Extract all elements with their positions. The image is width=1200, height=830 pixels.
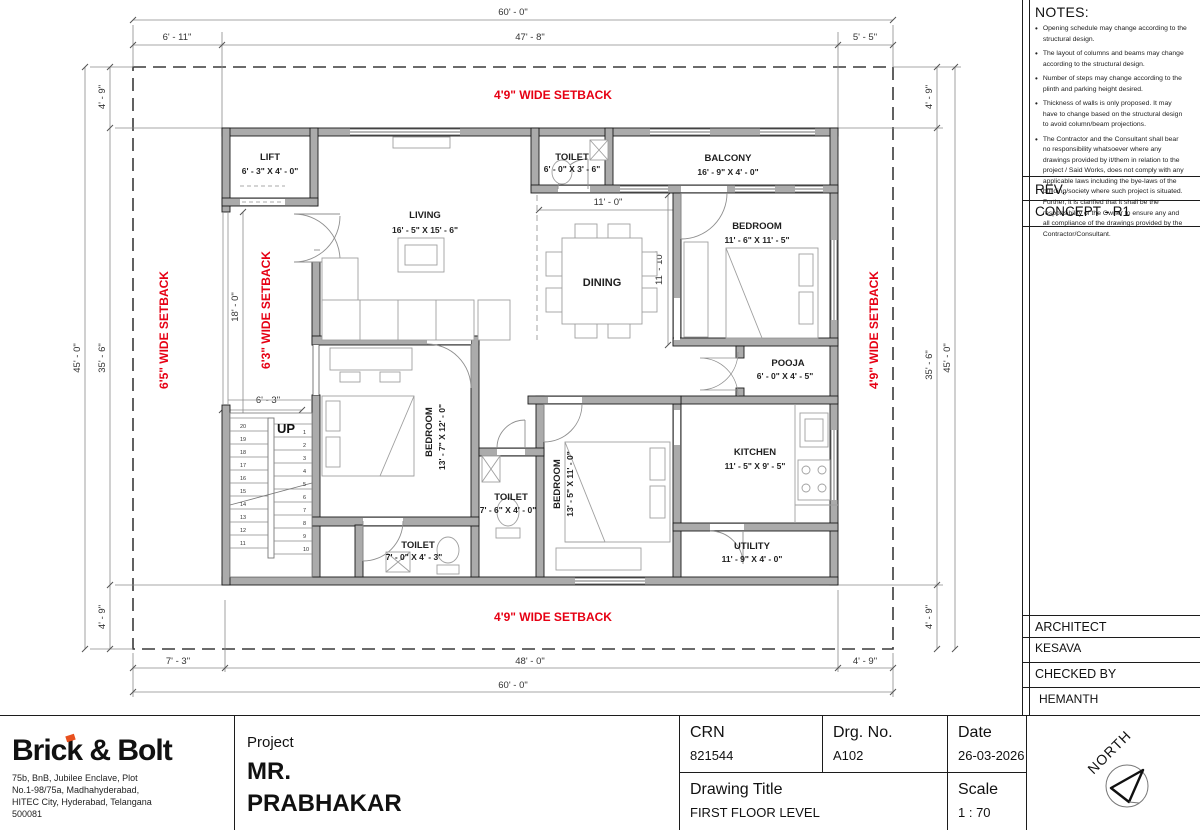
divider: [1023, 200, 1200, 201]
crn-label: CRN: [690, 724, 725, 742]
date-value: 26-03-2026: [958, 748, 1025, 763]
project-name-line2: PRABHAKAR: [247, 790, 402, 818]
stair-number: 11: [240, 541, 246, 547]
dim-bottom-total: 60' - 0": [498, 680, 527, 691]
divider: [1023, 687, 1200, 688]
crn-value: 821544: [690, 748, 733, 763]
drawing-title-cell: Drawing Title FIRST FLOOR LEVEL: [680, 773, 948, 830]
dim-right-top: 4' - 9": [924, 85, 935, 109]
architect-value: KESAVA: [1035, 641, 1081, 655]
dim-hall-width: 11' - 0": [594, 197, 623, 208]
dim-left-bottom: 4' - 9": [97, 605, 108, 629]
setback-top-label: 4'9" WIDE SETBACK: [494, 88, 612, 102]
dim-left-outer: 45' - 0": [72, 343, 83, 372]
stair-number: 16: [240, 476, 246, 482]
bullet: •: [1035, 74, 1038, 95]
furniture: [322, 137, 838, 574]
room-bedroom1-dim: 11' - 6" X 11' - 5": [724, 235, 789, 245]
date-cell: Date 26-03-2026: [948, 716, 1027, 773]
crn-cell: CRN 821544: [680, 716, 823, 773]
stair-number: 18: [240, 450, 246, 456]
room-bedroom2-name: BEDROOM: [424, 407, 435, 457]
company-name: Brick & Bolt: [12, 734, 172, 767]
stair-number: 14: [240, 502, 246, 508]
floor-plan-svg: 60' - 0" 6' - 11" 47' - 8" 5' - 5" 45' -…: [0, 0, 1022, 715]
dim-left-top: 4' - 9": [97, 85, 108, 109]
notes-panel: NOTES: •Opening schedule may change acco…: [1022, 0, 1200, 715]
stair-number: 15: [240, 489, 246, 495]
stair-number: 10: [303, 547, 309, 553]
architect-label: ARCHITECT: [1035, 620, 1107, 634]
date-label: Date: [958, 724, 992, 742]
dining-chair: [641, 288, 657, 312]
room-bedroom3-name: BEDROOM: [552, 459, 563, 509]
room-balcony-dim: 16' - 9" X 4' - 0": [697, 167, 758, 177]
room-bedroom1-name: BEDROOM: [732, 221, 782, 232]
divider: [1023, 226, 1200, 227]
dining-chair: [641, 252, 657, 276]
stair-number: 13: [240, 515, 246, 521]
north-arrow-icon: [1097, 756, 1157, 816]
drawing-title-value: FIRST FLOOR LEVEL: [690, 805, 820, 820]
dim-top-mid: 47' - 8": [515, 32, 544, 43]
wardrobe: [684, 242, 708, 337]
stair-number: 17: [240, 463, 246, 469]
notes-title: NOTES:: [1035, 4, 1187, 20]
drawing-title-label: Drawing Title: [690, 781, 782, 799]
room-pooja-name: POOJA: [771, 358, 804, 369]
drg-no-cell: Drg. No. A102: [823, 716, 948, 773]
drg-no-label: Drg. No.: [833, 724, 893, 742]
room-toilet-bottom-dim: 7' - 0" X 4' - 3": [386, 552, 443, 562]
stair-number: 9: [303, 534, 306, 540]
room-kitchen-name: KITCHEN: [734, 447, 776, 458]
project-name-line1: MR.: [247, 758, 291, 786]
checked-by-label: CHECKED BY: [1035, 667, 1116, 681]
dimension-ticks: [82, 17, 958, 695]
bullet: •: [1035, 24, 1038, 45]
stove: [798, 460, 830, 500]
dim-bottom-mid: 48' - 0": [515, 656, 544, 667]
divider: [1023, 662, 1200, 663]
room-bedroom3-dim: 13' - 5" X 11' - 0": [565, 451, 575, 517]
drg-no-value: A102: [833, 748, 863, 763]
stair-number: 20: [240, 424, 246, 430]
checked-by-value: HEMANTH: [1039, 692, 1098, 706]
room-pooja-dim: 6' - 0" X 4' - 5": [757, 371, 814, 381]
dim-left-inner: 35' - 6": [97, 343, 108, 372]
project-label: Project: [247, 734, 294, 751]
scale-label: Scale: [958, 781, 998, 799]
room-lift-dim: 6' - 3" X 4' - 0": [242, 166, 299, 176]
stair-number: 5: [303, 482, 306, 488]
note-item: •The layout of columns and beams may cha…: [1035, 49, 1187, 70]
room-kitchen-dim: 11' - 5" X 9' - 5": [725, 461, 786, 471]
room-utility-name: UTILITY: [734, 541, 771, 552]
dim-porch-height: 18' - 0": [230, 292, 241, 321]
stair-number: 2: [303, 443, 306, 449]
stair-number: 7: [303, 508, 306, 514]
dim-bottom-left: 7' - 3": [166, 656, 190, 667]
stair-number: 8: [303, 521, 306, 527]
divider: [1023, 176, 1200, 177]
setback-bottom-label: 4'9" WIDE SETBACK: [494, 610, 612, 624]
dim-top-total: 60' - 0": [498, 7, 527, 18]
stair-number: 12: [240, 528, 246, 534]
north-cell: NORTH: [1027, 716, 1200, 830]
stair-number: 1: [303, 430, 306, 436]
room-bedroom2-dim: 13' - 7" X 12' - 0": [437, 404, 447, 470]
note-item: •Opening schedule may change according t…: [1035, 24, 1187, 45]
setback-right-label: 4'9" WIDE SETBACK: [867, 271, 881, 389]
room-toilet-mid-name: TOILET: [494, 492, 528, 503]
setback-inner-left-label: 6'3" WIDE SETBACK: [259, 251, 273, 369]
drawing-sheet: 60' - 0" 6' - 11" 47' - 8" 5' - 5" 45' -…: [0, 0, 1200, 829]
note-item: •Number of steps may change according to…: [1035, 74, 1187, 95]
room-balcony-name: BALCONY: [705, 153, 753, 164]
stair-railing: [268, 418, 274, 558]
dim-right-bottom: 4' - 9": [924, 605, 935, 629]
room-living-name: LIVING: [409, 210, 441, 221]
dim-bottom-right: 4' - 9": [853, 656, 877, 667]
bullet: •: [1035, 49, 1038, 70]
room-living-dim: 16' - 5" X 15' - 6": [392, 225, 458, 235]
stair-number: 4: [303, 469, 306, 475]
room-utility-dim: 11' - 9" X 4' - 0": [722, 554, 783, 564]
rev-label: REV.: [1035, 182, 1065, 197]
title-block: Brick & Bolt 75b, BnB, Jubilee Enclave, …: [0, 715, 1200, 830]
dresser: [330, 348, 412, 370]
dim-right-outer: 45' - 0": [942, 343, 953, 372]
room-dining-name: DINING: [583, 277, 622, 289]
scale-value: 1 : 70: [958, 805, 991, 820]
setback-left-label: 6'5" WIDE SETBACK: [157, 271, 171, 389]
divider: [1023, 637, 1200, 638]
stair-number: 3: [303, 456, 306, 462]
room-toilet-bottom-name: TOILET: [401, 540, 435, 551]
divider: [1023, 615, 1200, 616]
dining-chair: [546, 252, 562, 276]
sofa-single: [478, 300, 510, 340]
floor-plan-area: 60' - 0" 6' - 11" 47' - 8" 5' - 5" 45' -…: [0, 0, 1022, 715]
room-toilet-top-dim: 6' - 0" X 3' - 6": [544, 164, 601, 174]
room-toilet-top-name: TOILET: [555, 152, 589, 163]
stair-number: 6: [303, 495, 306, 501]
scale-cell: Scale 1 : 70: [948, 773, 1027, 830]
company-cell: Brick & Bolt 75b, BnB, Jubilee Enclave, …: [0, 716, 235, 830]
stair-number: 19: [240, 437, 246, 443]
dim-top-left: 6' - 11": [163, 32, 192, 43]
note-item: •Thickness of walls is only proposed. It…: [1035, 99, 1187, 131]
company-logo: Brick & Bolt: [12, 734, 172, 768]
stairs-up-label: UP: [277, 421, 295, 436]
dining-chair: [546, 288, 562, 312]
dim-top-right: 5' - 5": [853, 32, 877, 43]
company-address: 75b, BnB, Jubilee Enclave, Plot No.1-98/…: [12, 772, 152, 821]
room-lift-name: LIFT: [260, 152, 280, 163]
project-cell: Project MR. PRABHAKAR: [235, 716, 680, 830]
bullet: •: [1035, 99, 1038, 131]
stairs: 2019181716151413121112345678910 UP: [230, 413, 312, 577]
tv-console: [393, 137, 450, 148]
dim-porch-width: 6' - 3": [256, 395, 280, 406]
dimension-texts: 60' - 0" 6' - 11" 47' - 8" 5' - 5" 45' -…: [72, 7, 953, 691]
rev-value: CONCEPT - R1: [1035, 204, 1130, 219]
sofa-corner: [322, 258, 358, 302]
dim-right-inner: 35' - 6": [924, 350, 935, 379]
bench: [556, 548, 641, 570]
room-toilet-mid-dim: 7' - 6" X 4' - 0": [480, 505, 537, 515]
